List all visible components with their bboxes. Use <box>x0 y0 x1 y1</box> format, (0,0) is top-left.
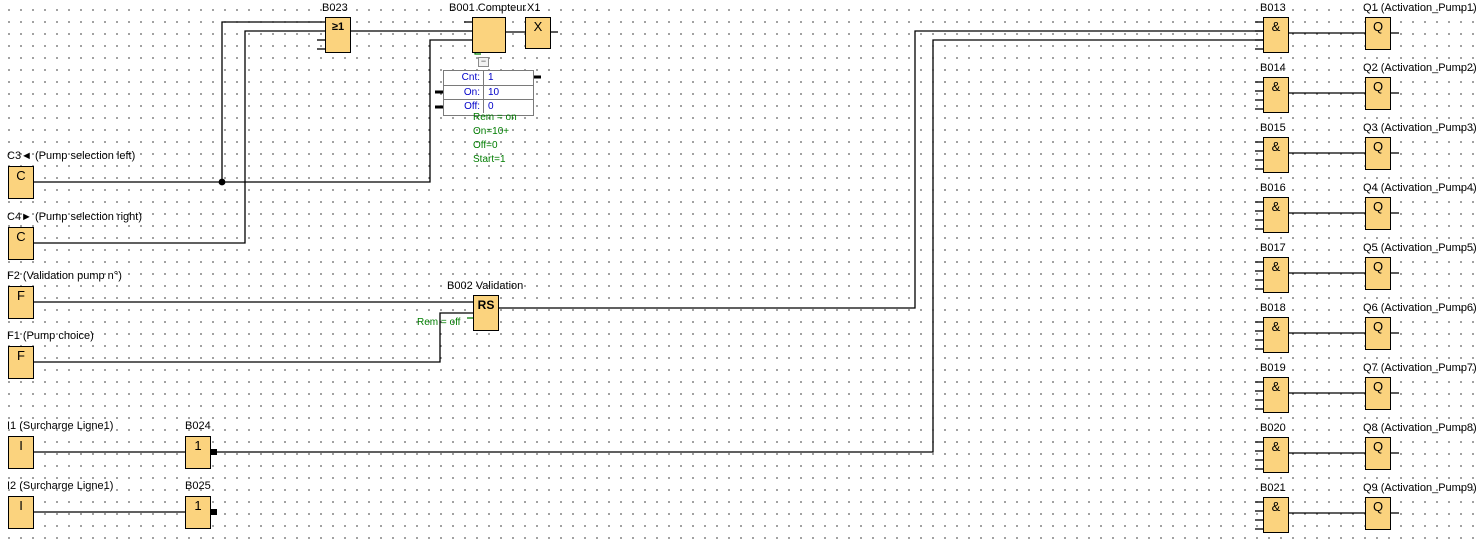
param-label-on: On: <box>444 86 484 99</box>
and-gate-b017-label: B017 <box>1260 243 1286 254</box>
and-gate-b013-symbol: & <box>1264 20 1288 34</box>
and-gate-b018-symbol: & <box>1264 320 1288 334</box>
output-block-q3-symbol: Q <box>1366 140 1390 154</box>
input-block-c4[interactable]: C <box>8 227 34 260</box>
and-gate-b020-symbol: & <box>1264 440 1288 454</box>
collapse-minus-button[interactable]: − <box>478 57 489 67</box>
input-block-i1-symbol: I <box>9 439 33 453</box>
and-gate-b015[interactable]: & <box>1263 137 1289 173</box>
input-block-c4-symbol: C <box>9 230 33 244</box>
not-gate-b025-label: B025 <box>185 481 211 492</box>
output-block-q5[interactable]: Q <box>1365 257 1391 290</box>
and-gate-b020-label: B020 <box>1260 423 1286 434</box>
output-q8-label: Q8 (Activation_Pump8) <box>1363 423 1477 434</box>
and-gate-b015-label: B015 <box>1260 123 1286 134</box>
output-q6-label: Q6 (Activation_Pump6) <box>1363 303 1477 314</box>
and-gate-b016[interactable]: & <box>1263 197 1289 233</box>
not-gate-b024-label: B024 <box>185 421 211 432</box>
and-gate-b014-symbol: & <box>1264 80 1288 94</box>
output-block-q5-symbol: Q <box>1366 260 1390 274</box>
and-gate-b016-symbol: & <box>1264 200 1288 214</box>
or-gate-b023-symbol: ≥1 <box>326 20 350 34</box>
output-q7-label: Q7 (Activation_Pump7) <box>1363 363 1477 374</box>
output-block-q6[interactable]: Q <box>1365 317 1391 350</box>
not-gate-b025[interactable]: 1 <box>185 496 211 529</box>
param-value-on[interactable]: 10 <box>484 86 499 99</box>
output-block-q9-symbol: Q <box>1366 500 1390 514</box>
output-block-q2[interactable]: Q <box>1365 77 1391 110</box>
and-gate-b013-label: B013 <box>1260 3 1286 14</box>
not-gate-b025-symbol: 1 <box>186 499 210 513</box>
and-gate-b018-label: B018 <box>1260 303 1286 314</box>
and-gate-b014-label: B014 <box>1260 63 1286 74</box>
counter-annotation-off: Off=0 <box>473 140 498 152</box>
output-block-q4-symbol: Q <box>1366 200 1390 214</box>
rs-latch-b002[interactable]: RS <box>473 295 499 331</box>
wire-layer <box>0 0 1479 544</box>
output-block-q2-symbol: Q <box>1366 80 1390 94</box>
input-label-c3: C3◄ (Pump selection left) <box>7 151 135 162</box>
and-gate-b016-label: B016 <box>1260 183 1286 194</box>
input-label-f1: F1 (Pump choice) <box>7 331 94 342</box>
counter-parameter-box[interactable]: Cnt: 1 On: 10 Off: 0 <box>443 70 534 116</box>
output-block-q6-symbol: Q <box>1366 320 1390 334</box>
input-block-i2[interactable]: I <box>8 496 34 529</box>
input-label-c4: C4► (Pump selection right) <box>7 212 142 223</box>
reference-x1-label: X1 <box>527 3 540 14</box>
and-gate-b020[interactable]: & <box>1263 437 1289 473</box>
input-block-i1[interactable]: I <box>8 436 34 469</box>
input-block-c3-symbol: C <box>9 169 33 183</box>
and-gate-b017[interactable]: & <box>1263 257 1289 293</box>
input-block-f2[interactable]: F <box>8 286 34 319</box>
output-q1-label: Q1 (Activation_Pump1) <box>1363 3 1477 14</box>
input-block-f2-symbol: F <box>9 289 33 303</box>
output-q2-label: Q2 (Activation_Pump2) <box>1363 63 1477 74</box>
output-block-q7-symbol: Q <box>1366 380 1390 394</box>
rs-latch-b002-symbol: RS <box>474 298 498 312</box>
param-label-cnt: Cnt: <box>444 71 484 85</box>
and-gate-b019[interactable]: & <box>1263 377 1289 413</box>
rs-latch-b002-label: B002 Validation <box>447 281 523 292</box>
output-block-q8-symbol: Q <box>1366 440 1390 454</box>
not-gate-b024[interactable]: 1 <box>185 436 211 469</box>
output-q4-label: Q4 (Activation_Pump4) <box>1363 183 1477 194</box>
counter-b001-label: B001 Compteur <box>449 3 526 14</box>
and-gate-b021[interactable]: & <box>1263 497 1289 533</box>
reference-block-x1-symbol: X <box>526 20 550 34</box>
output-block-q9[interactable]: Q <box>1365 497 1391 530</box>
param-row-on[interactable]: On: 10 <box>444 85 533 99</box>
and-gate-b018[interactable]: & <box>1263 317 1289 353</box>
or-gate-b023[interactable]: ≥1 <box>325 17 351 53</box>
input-block-f1[interactable]: F <box>8 346 34 379</box>
output-block-q1[interactable]: Q <box>1365 17 1391 50</box>
counter-annotation-on: On=10+ <box>473 126 509 138</box>
not-gate-b024-symbol: 1 <box>186 439 210 453</box>
output-q9-label: Q9 (Activation_Pump9) <box>1363 483 1477 494</box>
and-gate-b021-symbol: & <box>1264 500 1288 514</box>
and-gate-b014[interactable]: & <box>1263 77 1289 113</box>
param-row-cnt[interactable]: Cnt: 1 <box>444 71 533 85</box>
input-block-c3[interactable]: C <box>8 166 34 199</box>
counter-annotation-rem: Rem = on <box>473 112 517 124</box>
param-value-cnt[interactable]: 1 <box>484 71 494 85</box>
fbd-canvas[interactable]: Cnt: 1 On: 10 Off: 0 − Rem = on On=10+ O… <box>0 0 1479 544</box>
counter-annotation-start: Start=1 <box>473 154 506 166</box>
reference-block-x1[interactable]: X <box>525 17 551 49</box>
input-block-f1-symbol: F <box>9 349 33 363</box>
and-gate-b013[interactable]: & <box>1263 17 1289 53</box>
input-block-i2-symbol: I <box>9 499 33 513</box>
and-gate-b019-symbol: & <box>1264 380 1288 394</box>
output-q5-label: Q5 (Activation_Pump5) <box>1363 243 1477 254</box>
and-gate-b019-label: B019 <box>1260 363 1286 374</box>
output-block-q3[interactable]: Q <box>1365 137 1391 170</box>
counter-b001[interactable] <box>472 17 506 53</box>
output-block-q1-symbol: Q <box>1366 20 1390 34</box>
rs-annotation-rem: Rem = off <box>417 317 460 329</box>
or-gate-b023-label: B023 <box>322 3 348 14</box>
input-label-i2: I2 (Surcharge Ligne1) <box>7 481 113 492</box>
output-block-q4[interactable]: Q <box>1365 197 1391 230</box>
output-block-q8[interactable]: Q <box>1365 437 1391 470</box>
param-row-off[interactable]: Off: 0 <box>444 99 533 113</box>
output-block-q7[interactable]: Q <box>1365 377 1391 410</box>
input-label-f2: F2 (Validation pump n°) <box>7 271 122 282</box>
output-q3-label: Q3 (Activation_Pump3) <box>1363 123 1477 134</box>
and-gate-b021-label: B021 <box>1260 483 1286 494</box>
and-gate-b017-symbol: & <box>1264 260 1288 274</box>
and-gate-b015-symbol: & <box>1264 140 1288 154</box>
input-label-i1: I1 (Surcharge Ligne1) <box>7 421 113 432</box>
